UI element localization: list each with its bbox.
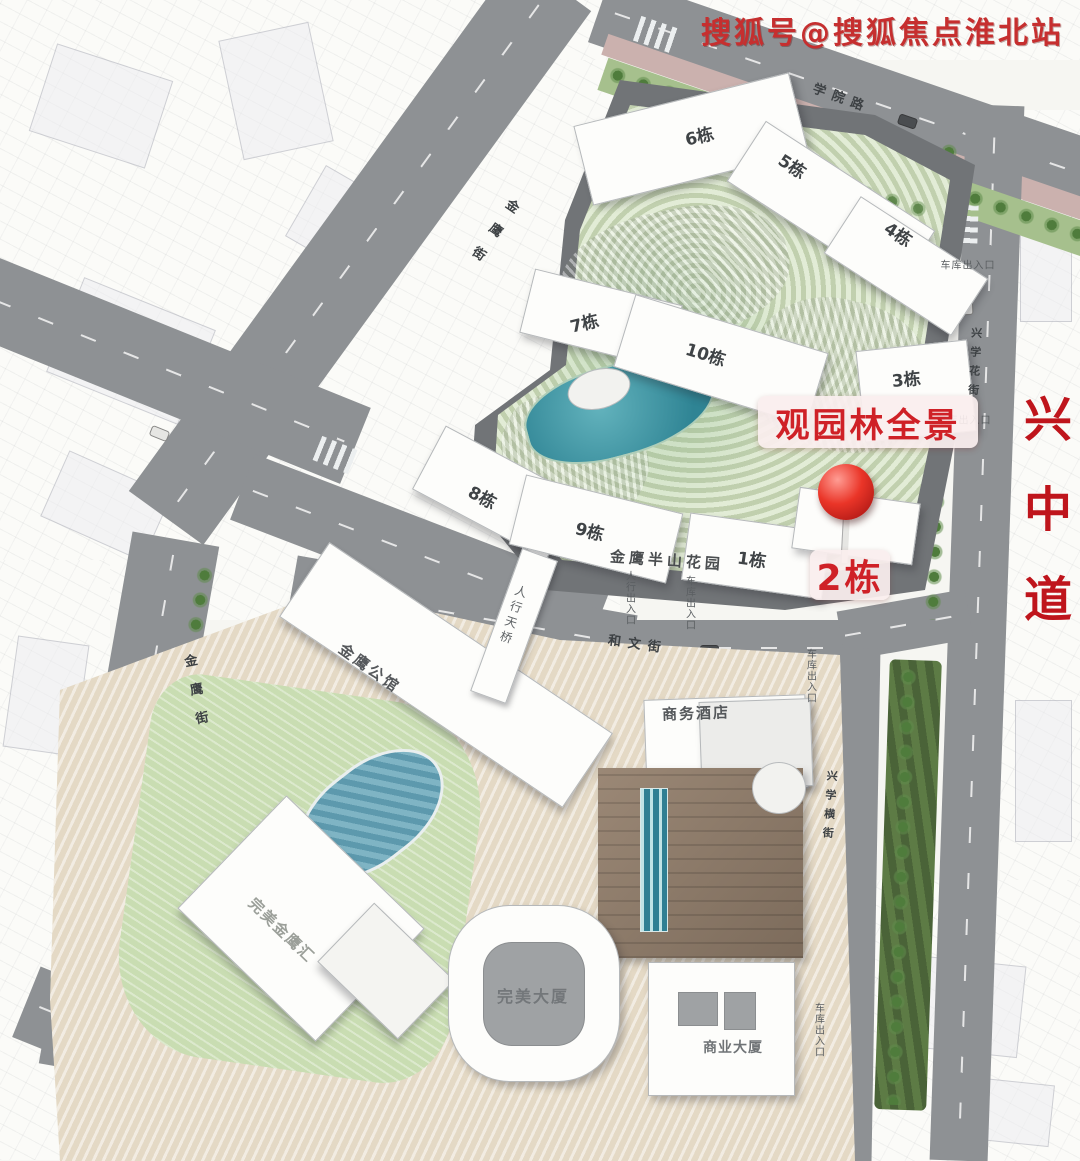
site-plan-map: 6栋 5栋 4栋 7栋 10栋 3栋 8栋 9栋 1栋 金鹰半山花园 金鹰公馆 …	[0, 0, 1080, 1161]
watermark: 搜狐号@搜狐焦点淮北站	[701, 8, 1064, 52]
building-1-label: 1栋	[736, 544, 768, 573]
garden-view-banner: 观园林全景	[758, 396, 978, 448]
commercial-tower-label: 商业大厦	[703, 1037, 763, 1057]
garage-entrance-label: 车库出入口	[803, 649, 818, 704]
round-hall	[752, 762, 806, 814]
garden-view-banner-text: 观园林全景	[776, 398, 961, 447]
arterial-road-label: 兴中道	[1008, 394, 1078, 664]
sketch-block	[1015, 700, 1072, 842]
pin-building-tag: 2栋	[810, 550, 890, 600]
pedestrian-entrance-label: 人行出入口	[622, 571, 637, 626]
commercial-tower-block	[724, 992, 756, 1030]
lap-pool	[640, 788, 668, 932]
garage-entrance-label: 车库出入口	[811, 1003, 826, 1058]
hotel-label: 商务酒店	[662, 701, 731, 724]
building-3-label: 3栋	[890, 364, 921, 392]
commercial-tower-block	[678, 992, 718, 1026]
pin-building-tag-text: 2栋	[816, 549, 883, 601]
garage-entrance-label: 车库出入口	[941, 257, 996, 272]
commercial-tower-building	[648, 962, 795, 1096]
perfect-tower-label: 完美大厦	[497, 983, 569, 1007]
garage-entrance-label: 车库出入口	[682, 576, 697, 631]
location-pin-icon	[818, 464, 874, 520]
